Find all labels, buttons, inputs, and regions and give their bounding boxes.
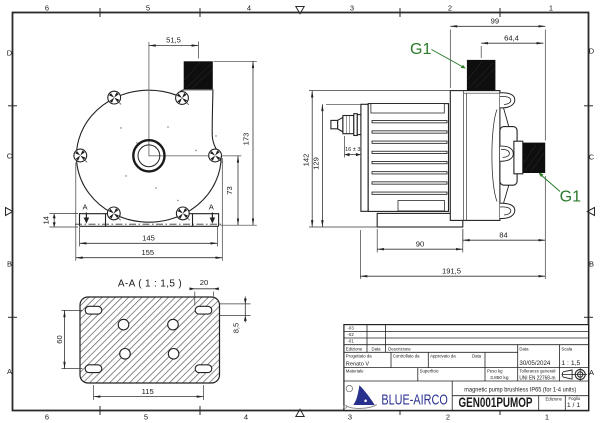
svg-text:Renato V: Renato V — [346, 362, 370, 368]
svg-text:A: A — [589, 368, 594, 377]
svg-text:5: 5 — [146, 4, 150, 13]
svg-text:Data: Data — [472, 354, 482, 359]
svg-text:Scala: Scala — [561, 346, 572, 351]
svg-text:4: 4 — [244, 413, 248, 422]
svg-text:2: 2 — [446, 413, 450, 422]
svg-text:Tolleranze generali: Tolleranze generali — [519, 369, 555, 374]
svg-text:3,850 kg: 3,850 kg — [490, 375, 509, 381]
svg-text:Foglio: Foglio — [569, 396, 581, 401]
svg-text:1: 1 — [549, 4, 553, 13]
svg-text:51,5: 51,5 — [166, 36, 181, 45]
svg-text:6: 6 — [45, 413, 49, 422]
svg-text:A: A — [7, 367, 12, 376]
svg-text:Data: Data — [372, 347, 382, 352]
svg-text:BLUE-AIRCO: BLUE-AIRCO — [381, 392, 447, 409]
svg-text:64,4: 64,4 — [504, 34, 519, 43]
svg-text:-02: -02 — [348, 332, 355, 337]
svg-text:2: 2 — [448, 4, 452, 13]
svg-text:1: 1 — [545, 413, 549, 422]
svg-text:16 ± 3: 16 ± 3 — [345, 147, 361, 153]
svg-text:1 : 1,5: 1 : 1,5 — [561, 360, 580, 367]
svg-text:Data: Data — [519, 346, 529, 351]
svg-text:Descrizione: Descrizione — [388, 347, 411, 352]
svg-text:142: 142 — [301, 154, 310, 167]
svg-text:90: 90 — [416, 240, 424, 249]
svg-text:4: 4 — [247, 4, 251, 13]
svg-text:D: D — [7, 49, 13, 58]
svg-text:-01: -01 — [348, 339, 355, 344]
svg-text:99: 99 — [491, 17, 499, 26]
svg-text:3: 3 — [350, 4, 354, 13]
svg-text:191,5: 191,5 — [442, 266, 461, 275]
svg-text:C: C — [589, 153, 595, 162]
svg-text:14: 14 — [41, 216, 50, 224]
svg-text:60: 60 — [55, 335, 64, 343]
svg-text:Peso kg: Peso kg — [487, 369, 503, 374]
svg-text:1 / 1: 1 / 1 — [567, 402, 580, 409]
svg-text:5: 5 — [144, 413, 148, 422]
svg-text:Edizione: Edizione — [546, 397, 563, 402]
svg-text:129: 129 — [312, 157, 321, 170]
svg-text:30/05/2024: 30/05/2024 — [519, 360, 551, 367]
svg-text:B: B — [7, 260, 12, 269]
svg-text:Controllato da: Controllato da — [393, 354, 420, 359]
svg-text:Superficie: Superficie — [420, 369, 440, 374]
svg-text:G1: G1 — [560, 189, 581, 206]
svg-text:GEN001PUMOP: GEN001PUMOP — [459, 395, 533, 410]
svg-text:Edizione: Edizione — [346, 347, 363, 352]
svg-text:84: 84 — [499, 231, 507, 240]
svg-text:A-A ( 1 : 1,5 ): A-A ( 1 : 1,5 ) — [118, 279, 182, 290]
svg-text:155: 155 — [141, 248, 154, 257]
svg-text:UNI EN 22768-m: UNI EN 22768-m — [519, 375, 555, 381]
svg-text:3: 3 — [348, 413, 352, 422]
svg-text:8,5: 8,5 — [231, 323, 240, 334]
svg-text:173: 173 — [241, 133, 250, 146]
svg-text:Materiale: Materiale — [346, 369, 364, 374]
svg-text:G1: G1 — [410, 41, 431, 58]
svg-text:C: C — [7, 152, 13, 161]
svg-text:-03: -03 — [348, 325, 355, 330]
svg-text:D: D — [589, 47, 595, 56]
svg-text:73: 73 — [225, 186, 234, 194]
svg-text:B: B — [589, 260, 594, 269]
svg-text:145: 145 — [142, 234, 155, 243]
svg-text:Approvato da: Approvato da — [430, 354, 456, 359]
svg-text:6: 6 — [45, 4, 49, 13]
svg-text:20: 20 — [200, 278, 208, 287]
svg-text:Progettato da: Progettato da — [346, 354, 372, 359]
svg-text:115: 115 — [142, 387, 154, 396]
svg-text:magnetic pump brushless IP65 (: magnetic pump brushless IP65 (for 1-4 un… — [464, 386, 576, 393]
